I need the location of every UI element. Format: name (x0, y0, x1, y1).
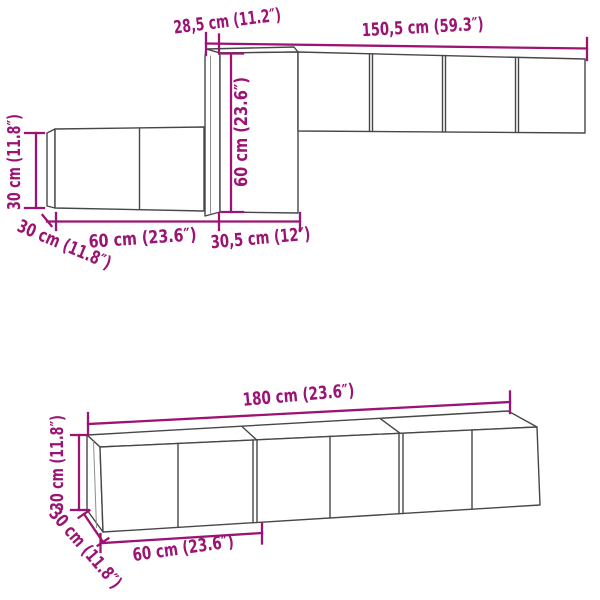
dim-label-width-tall: 30,5 cm (12″) (210, 224, 311, 254)
dim-tick-slanted (79, 510, 90, 517)
dim-label-depth-top: 28,5 cm (11.2″) (172, 5, 282, 39)
tall-cabinet-side-face (205, 49, 220, 216)
diagram-canvas: 28,5 cm (11.2″) 150,5 cm (59.3″) 60 cm (… (0, 0, 600, 600)
bottom-cabinet-row (87, 411, 540, 532)
dim-label-height-left: 30 cm (11.8″) (4, 114, 25, 210)
top-left-cabinet (47, 127, 204, 211)
bottom-diagram: 180 cm (23.6″) 30 cm (11.8″) 30 cm (11.8… (44, 380, 540, 593)
dim-label-width-left: 60 cm (23.6″) (88, 224, 197, 252)
left-cabinet-front-face (55, 127, 204, 211)
top-bottom-dimensions: 30 cm (11.8″) 60 cm (23.6″) 30,5 cm (12″… (14, 213, 311, 274)
dim-label-width-upper-row: 150,5 cm (59.3″) (361, 14, 484, 41)
dim-label-width-single: 60 cm (23.6″) (131, 531, 235, 566)
product-dimension-image: 28,5 cm (11.2″) 150,5 cm (59.3″) 60 cm (… (0, 0, 600, 600)
top-diagram: 28,5 cm (11.2″) 150,5 cm (59.3″) 60 cm (… (4, 5, 587, 275)
top-right-cabinet-row (298, 52, 585, 133)
dim-label-height-tall: 60 cm (23.6″) (231, 77, 252, 187)
dim-label-width-total: 180 cm (23.6″) (242, 380, 355, 411)
row-height-dimension: 30 cm (11.8″) (47, 415, 88, 511)
right-row-front-face (298, 52, 585, 133)
left-cabinet-height-dimension: 30 cm (11.8″) (4, 114, 44, 210)
dim-label-height-cabinet: 30 cm (11.8″) (47, 415, 68, 511)
left-cabinet-side-face (47, 129, 55, 208)
